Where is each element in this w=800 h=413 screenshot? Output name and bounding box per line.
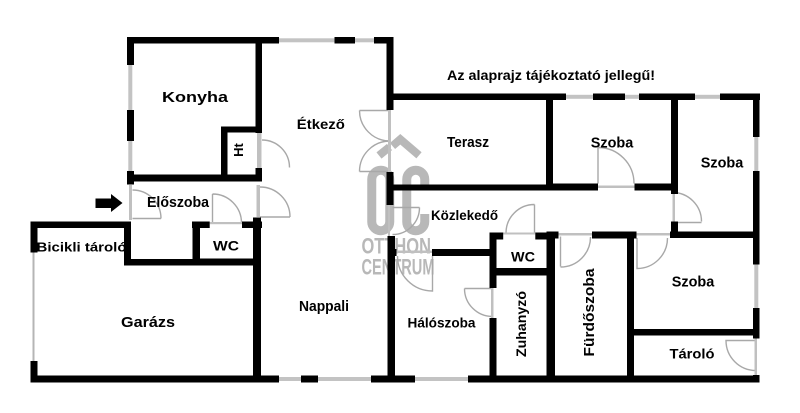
svg-text:Szoba: Szoba <box>672 275 715 291</box>
svg-text:Szoba: Szoba <box>701 156 744 172</box>
svg-text:Tároló: Tároló <box>670 346 715 362</box>
svg-text:Közlekedő: Közlekedő <box>431 207 498 223</box>
svg-text:Szoba: Szoba <box>591 136 634 152</box>
svg-text:Fürdőszoba: Fürdőszoba <box>582 268 598 357</box>
svg-text:WC: WC <box>213 238 239 254</box>
svg-text:Terasz: Terasz <box>447 134 489 151</box>
svg-text:Garázs: Garázs <box>121 314 175 331</box>
svg-text:Bicikli tároló: Bicikli tároló <box>37 240 127 255</box>
svg-text:Nappali: Nappali <box>299 298 349 315</box>
svg-text:Hálószoba: Hálószoba <box>408 315 476 331</box>
svg-text:Előszoba: Előszoba <box>147 195 210 211</box>
svg-text:WC: WC <box>511 250 535 265</box>
svg-text:Étkező: Étkező <box>297 116 345 132</box>
svg-text:Konyha: Konyha <box>162 89 229 106</box>
svg-text:Ht: Ht <box>231 142 246 156</box>
svg-text:Zuhanyzó: Zuhanyzó <box>513 291 529 357</box>
svg-text:Az alaprajz tájékoztató jelleg: Az alaprajz tájékoztató jellegű! <box>447 67 655 83</box>
